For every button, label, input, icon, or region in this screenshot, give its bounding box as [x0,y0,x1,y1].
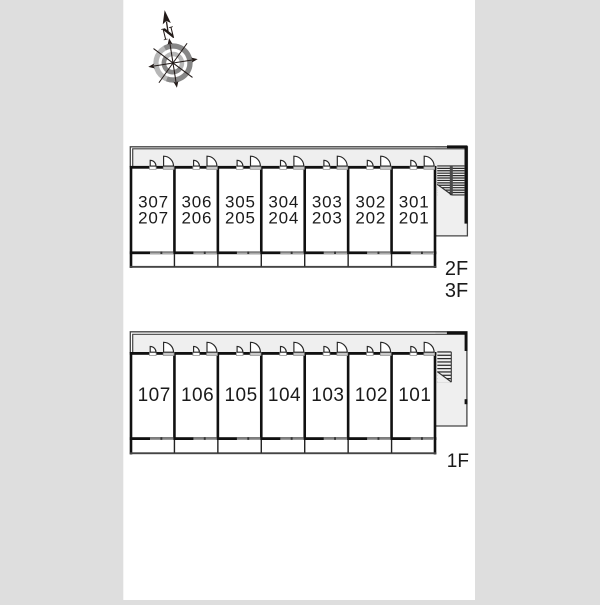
svg-text:104: 104 [268,385,301,406]
svg-text:102: 102 [355,385,388,406]
svg-text:201: 201 [399,208,430,227]
svg-text:205: 205 [225,208,256,227]
svg-text:207: 207 [138,208,169,227]
svg-text:1F: 1F [447,451,469,472]
svg-text:103: 103 [311,385,344,406]
svg-text:3F: 3F [445,280,468,302]
svg-text:204: 204 [268,208,299,227]
svg-text:203: 203 [312,208,343,227]
svg-text:2F: 2F [445,258,468,280]
svg-text:106: 106 [181,385,214,406]
svg-text:101: 101 [398,385,431,406]
svg-text:107: 107 [138,385,171,406]
svg-text:105: 105 [224,385,257,406]
svg-text:206: 206 [182,208,213,227]
svg-text:202: 202 [355,208,386,227]
